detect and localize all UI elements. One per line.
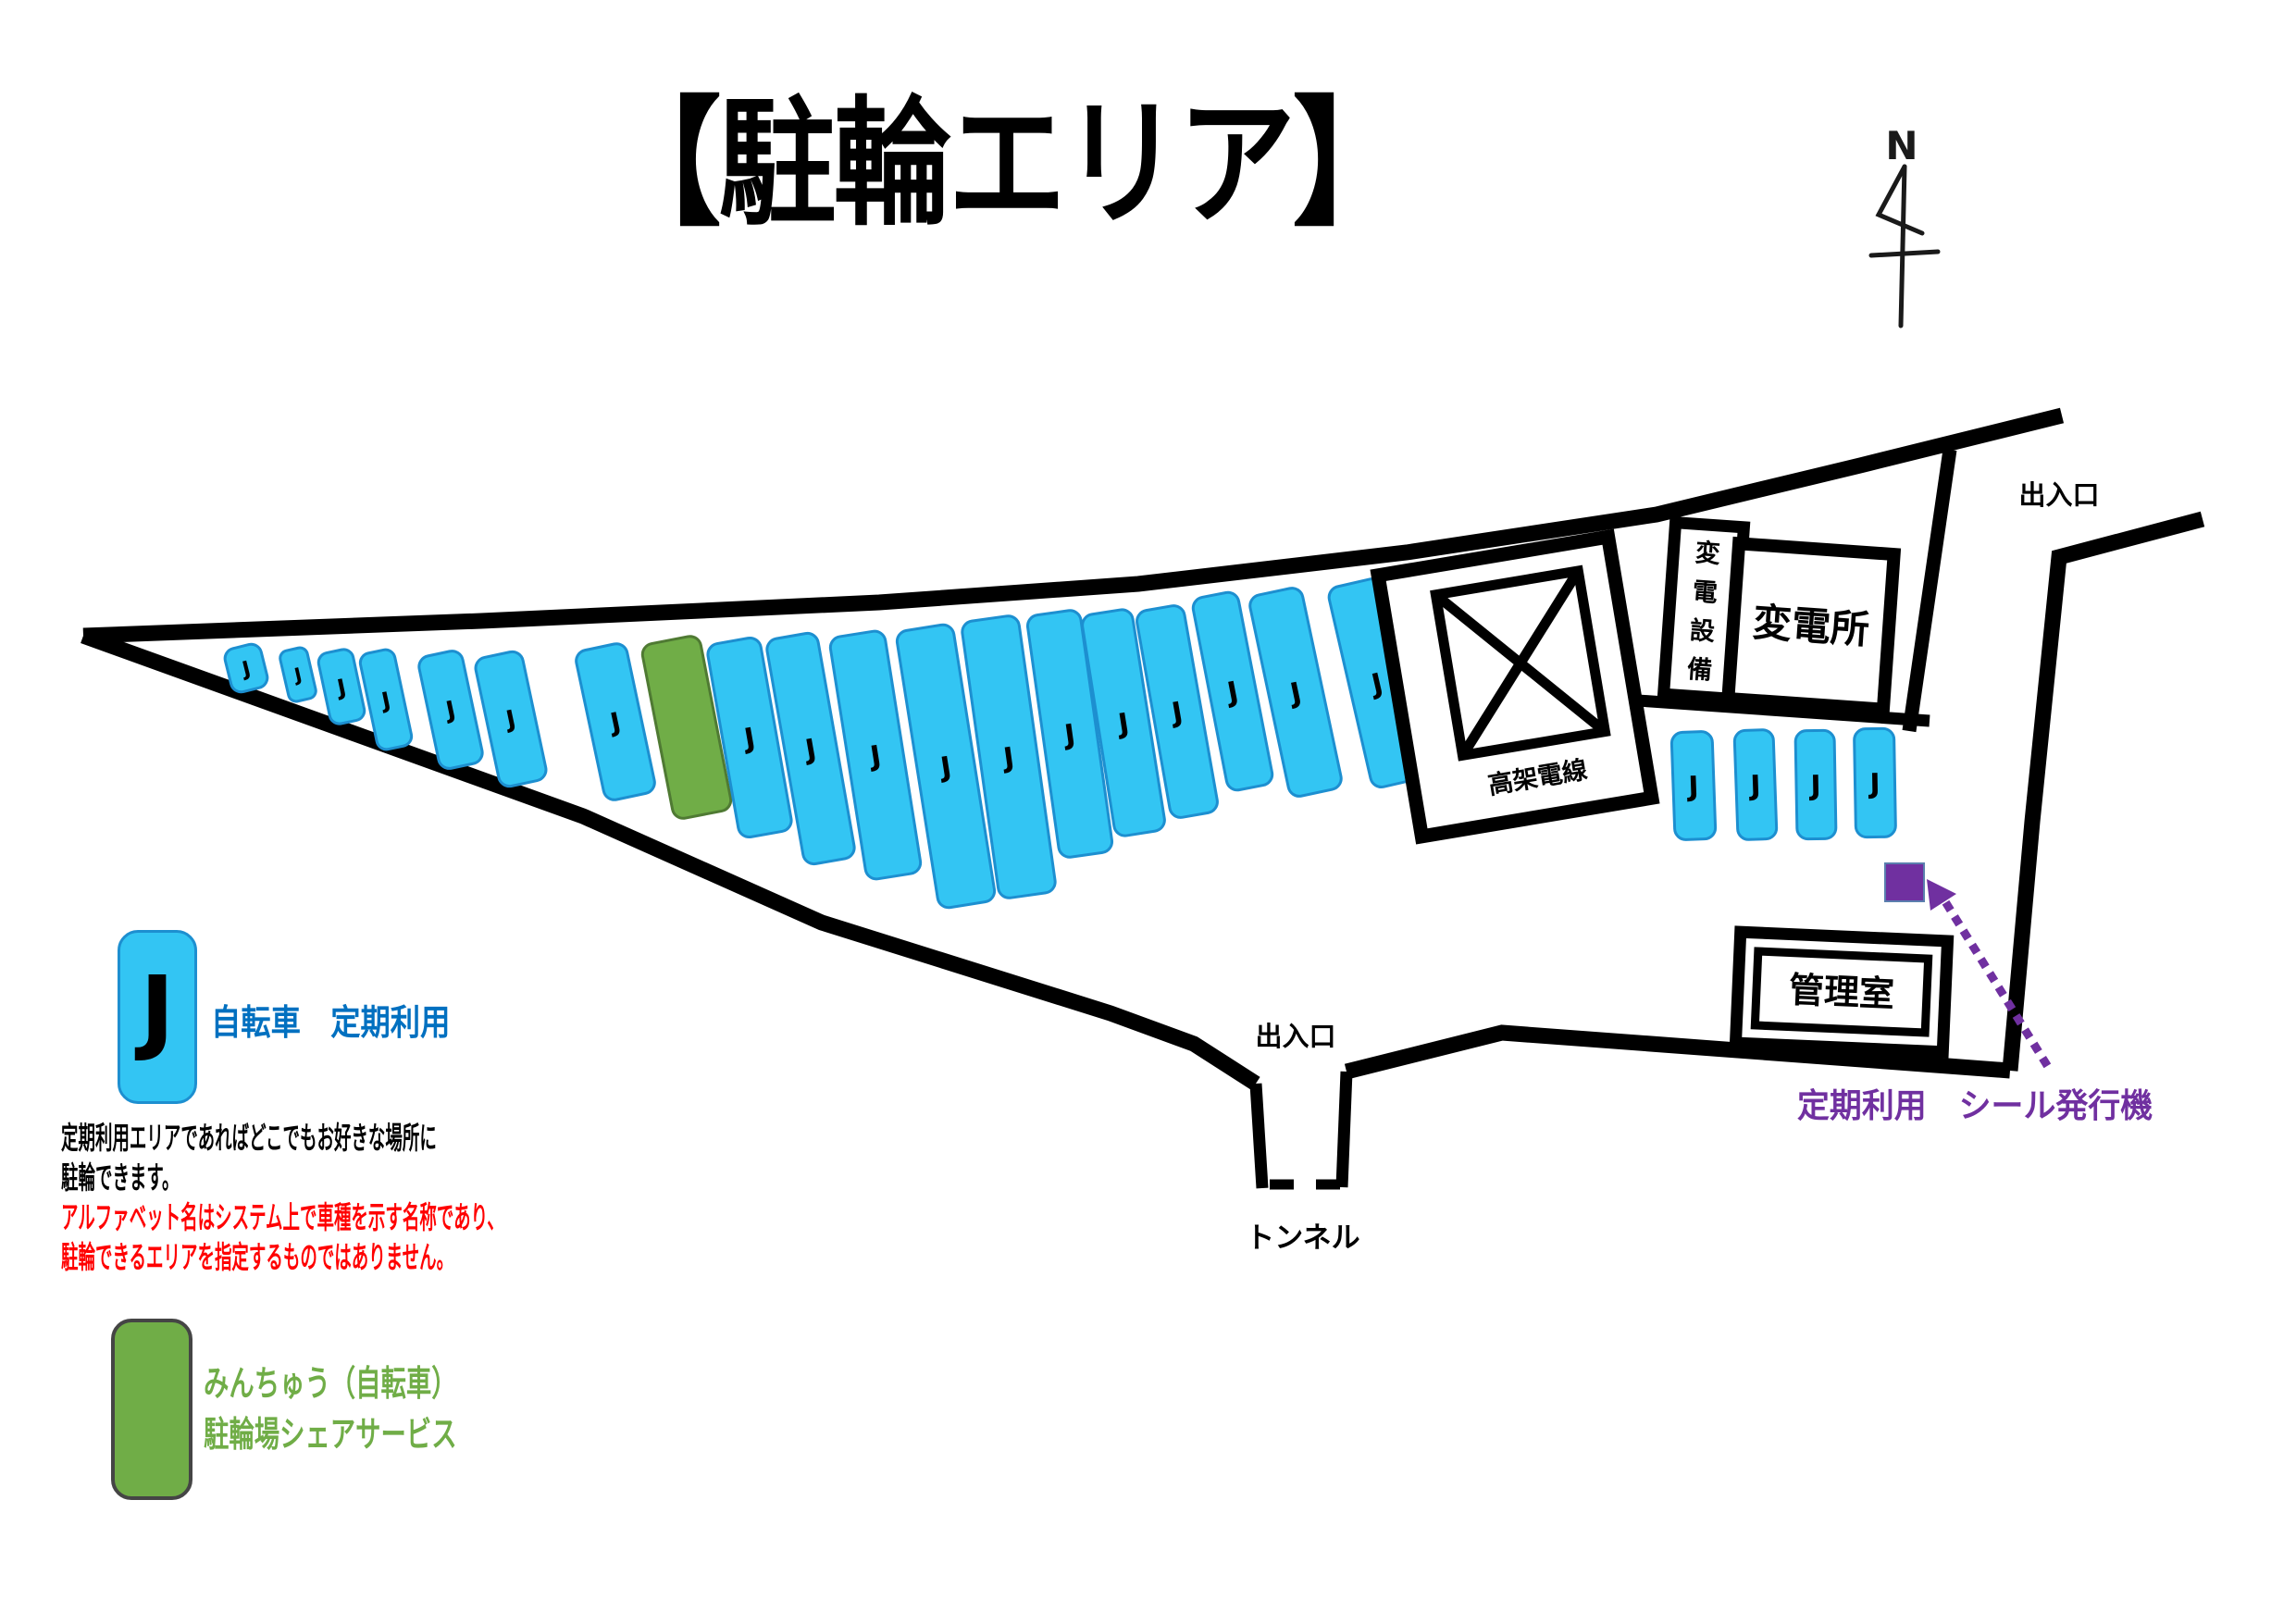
transformer-equipment-char: 設 (1689, 615, 1717, 647)
parking-slot-label: J (1748, 770, 1761, 802)
compass-n-label: N (1885, 123, 1917, 168)
legend-share-text: みんちゅう（自転車） 駐輪場シェアサービス (204, 1358, 555, 1460)
legend-share-slot-swatch (111, 1319, 192, 1500)
management-office-building: 管理室 (1735, 932, 1947, 1052)
parking-slot: J (1795, 730, 1836, 839)
parking-slot: J (474, 650, 548, 788)
parking-slot-label: J (1868, 768, 1880, 800)
parking-slot: J (1854, 728, 1895, 837)
inner-divider-east (1909, 450, 1950, 731)
tunnel-left-wall (1256, 1084, 1262, 1188)
legend-warning-line: アルファベット名はシステム上で車種を示す名称であり、 (61, 1197, 504, 1237)
legend-share-title: みんちゅう（自転車） (204, 1358, 457, 1409)
legend-regular-slot-symbol: J (140, 964, 174, 1057)
transformer-equipment-char: 変 (1694, 538, 1721, 569)
management-office-label: 管理室 (1788, 970, 1895, 1015)
parking-slot: J (1734, 729, 1777, 839)
entrance-bottom-label: 出入口 (1255, 1021, 1335, 1052)
parking-slot-label: J (1686, 771, 1699, 803)
legend-warning-line: 駐輪できるエリアを指定するものではありません。 (61, 1237, 504, 1277)
legend-description: 定期利用エリアであればどこでもお好きな場所に 駐輪できます。 アルファベット名は… (61, 1118, 852, 1277)
boundary-east-edge (2010, 519, 2203, 1071)
sticker-machine-marker (1885, 863, 1924, 901)
parking-slot: J (316, 648, 366, 725)
substation-label: 変電所 (1751, 600, 1870, 653)
legend-share-subtitle: 駐輪場シェアサービス (204, 1409, 457, 1460)
transformer-equipment-char: 電 (1692, 577, 1719, 608)
legend-description-line: 定期利用エリアであればどこでもお好きな場所に (61, 1118, 504, 1158)
parking-slot-label: J (1808, 770, 1821, 802)
parking-slot: J (279, 646, 317, 702)
substation-building: 変電所 (1728, 543, 1893, 709)
compass-north-indicator: N (1871, 123, 1938, 326)
legend-description-line: 駐輪できます。 (61, 1158, 504, 1197)
tunnel-label: トンネル (1246, 1221, 1359, 1255)
sticker-machine-caption: 定期利用 シール発行機 (1797, 1079, 2153, 1127)
legend-regular-title: 自転車 定期利用 (211, 994, 450, 1045)
legend-regular-slot-swatch: J (118, 930, 197, 1104)
overhead-wires-structure: 高架電線 (1378, 537, 1652, 837)
tunnel-right-wall (1342, 1072, 1347, 1187)
transformer-equipment-char: 備 (1686, 654, 1713, 686)
parking-slot: J (1671, 731, 1716, 839)
compass-arrow-icon (1871, 167, 1938, 326)
entrance-top-label: 出入口 (2018, 479, 2099, 511)
